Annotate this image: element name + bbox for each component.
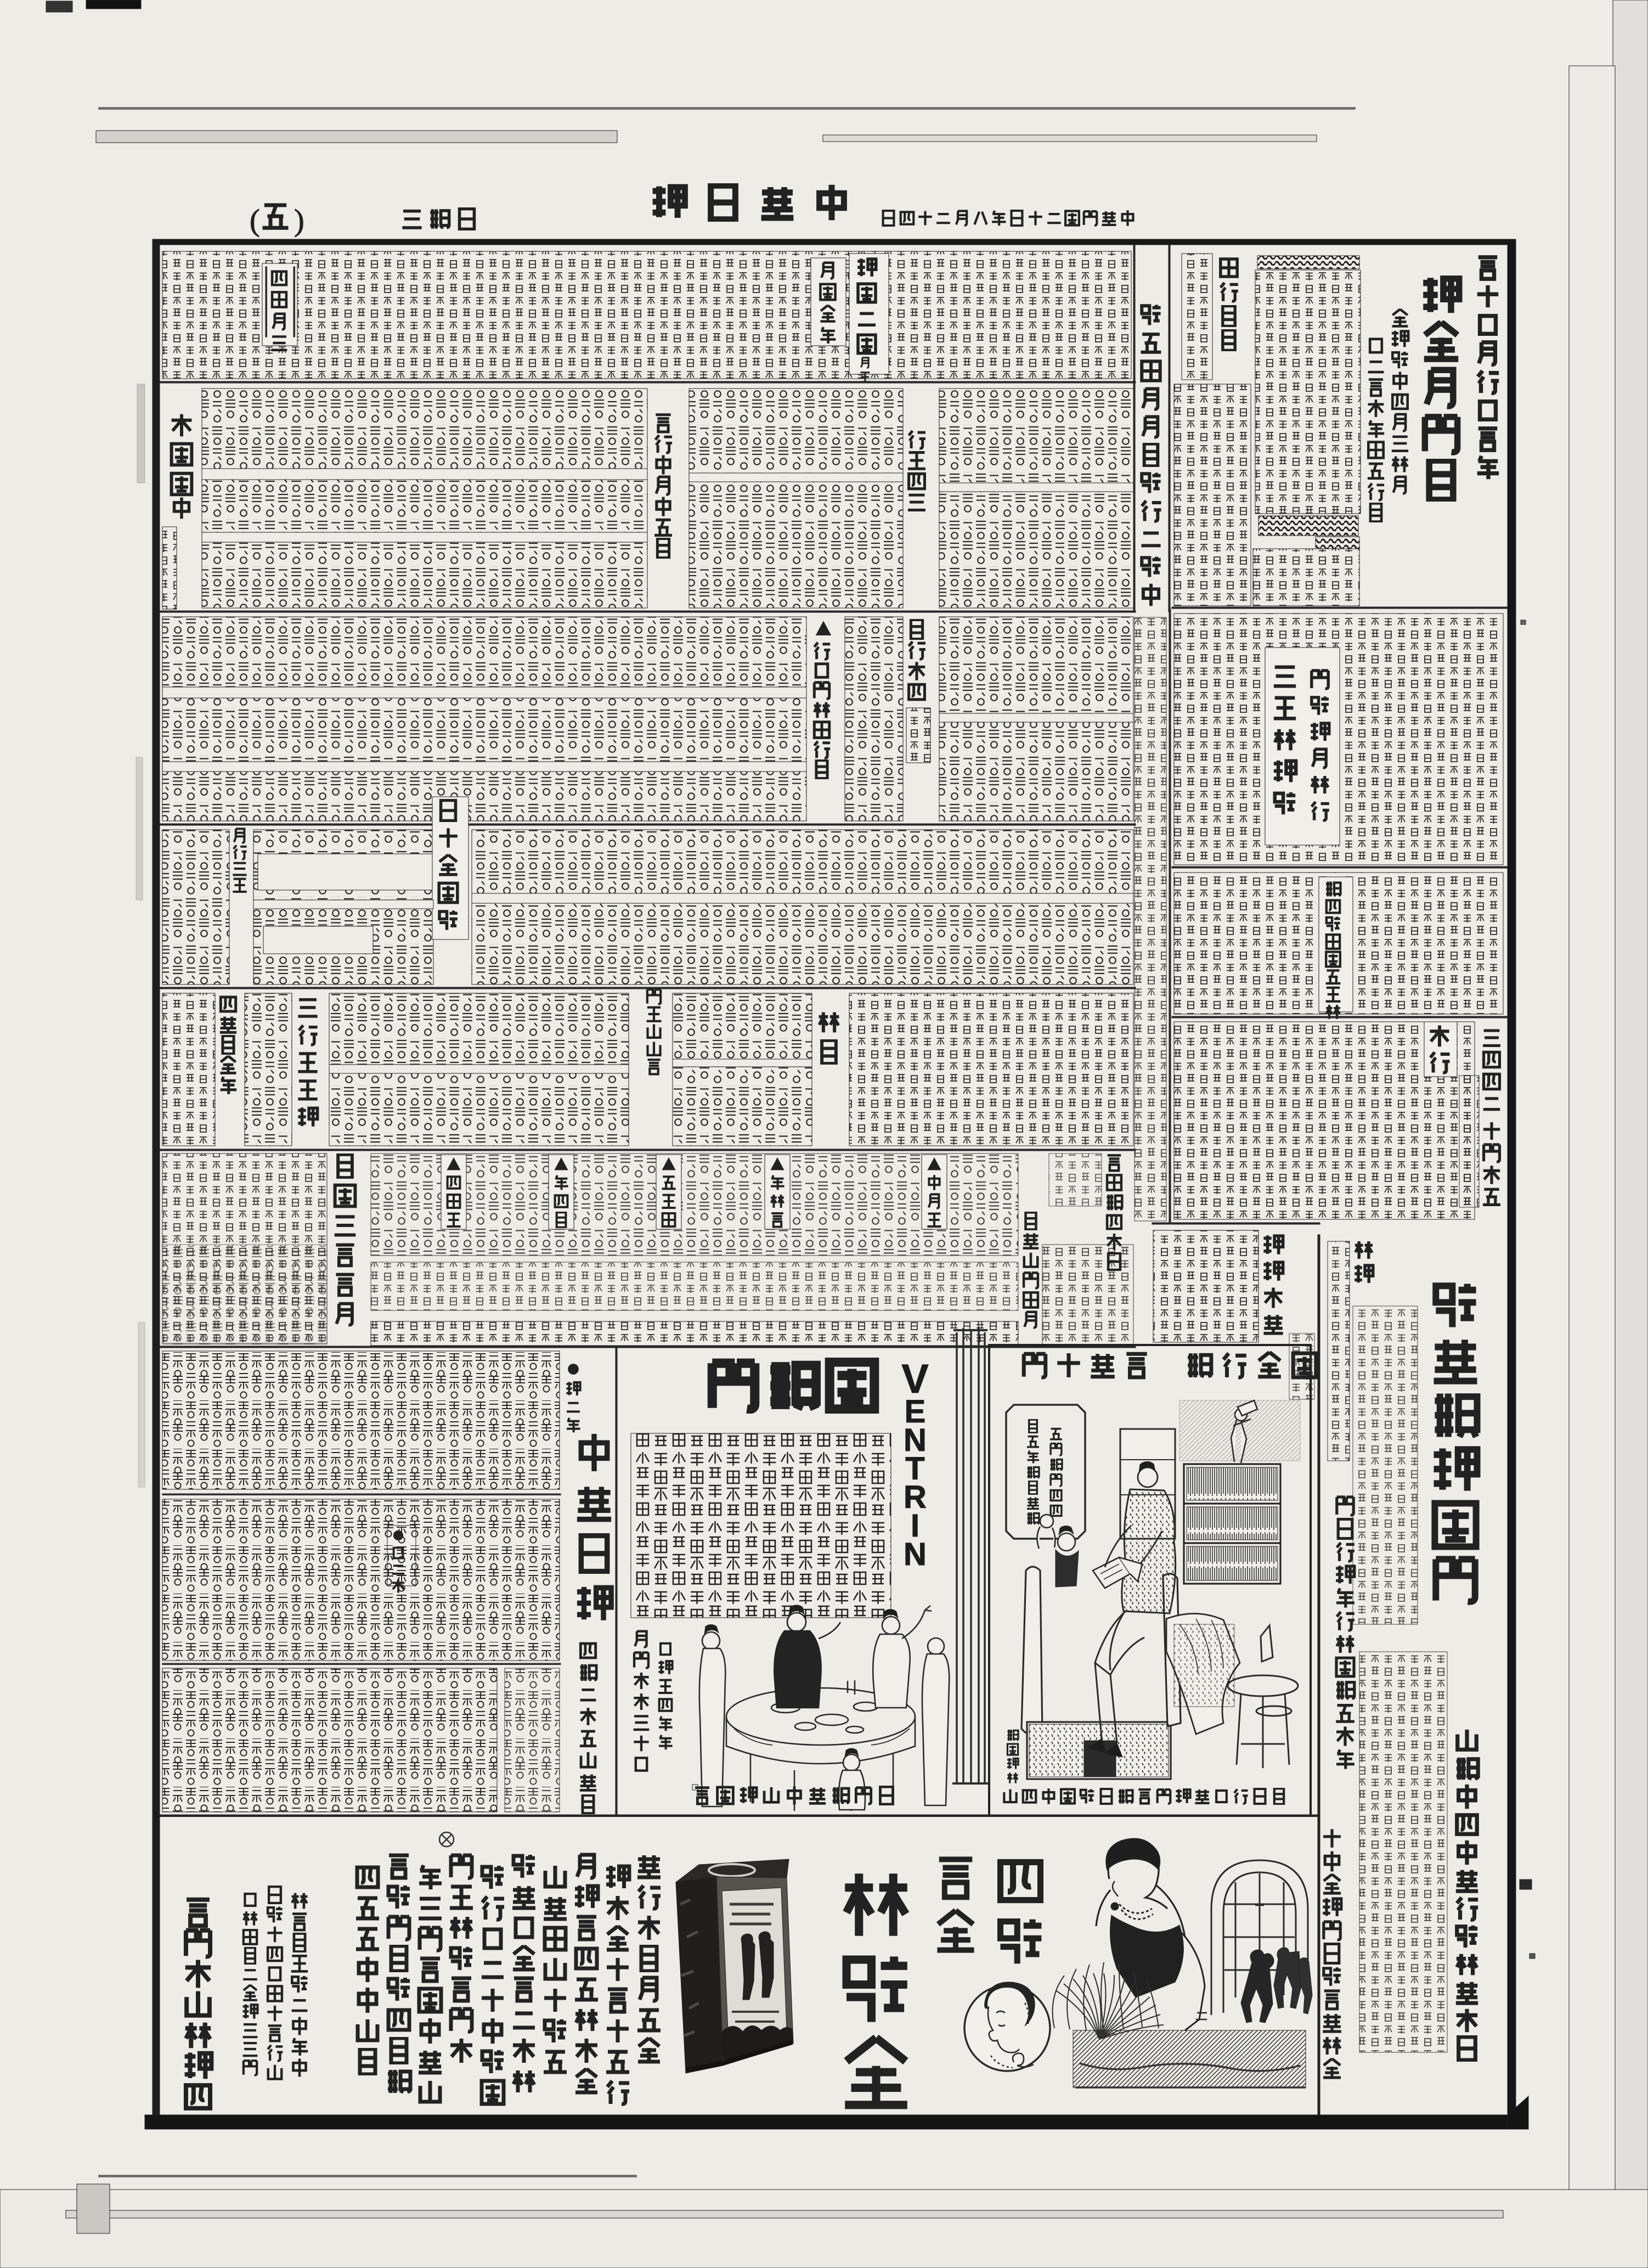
svg-text:): )	[294, 204, 304, 238]
svg-text:N: N	[904, 1537, 927, 1572]
svg-text:(: (	[250, 204, 260, 238]
